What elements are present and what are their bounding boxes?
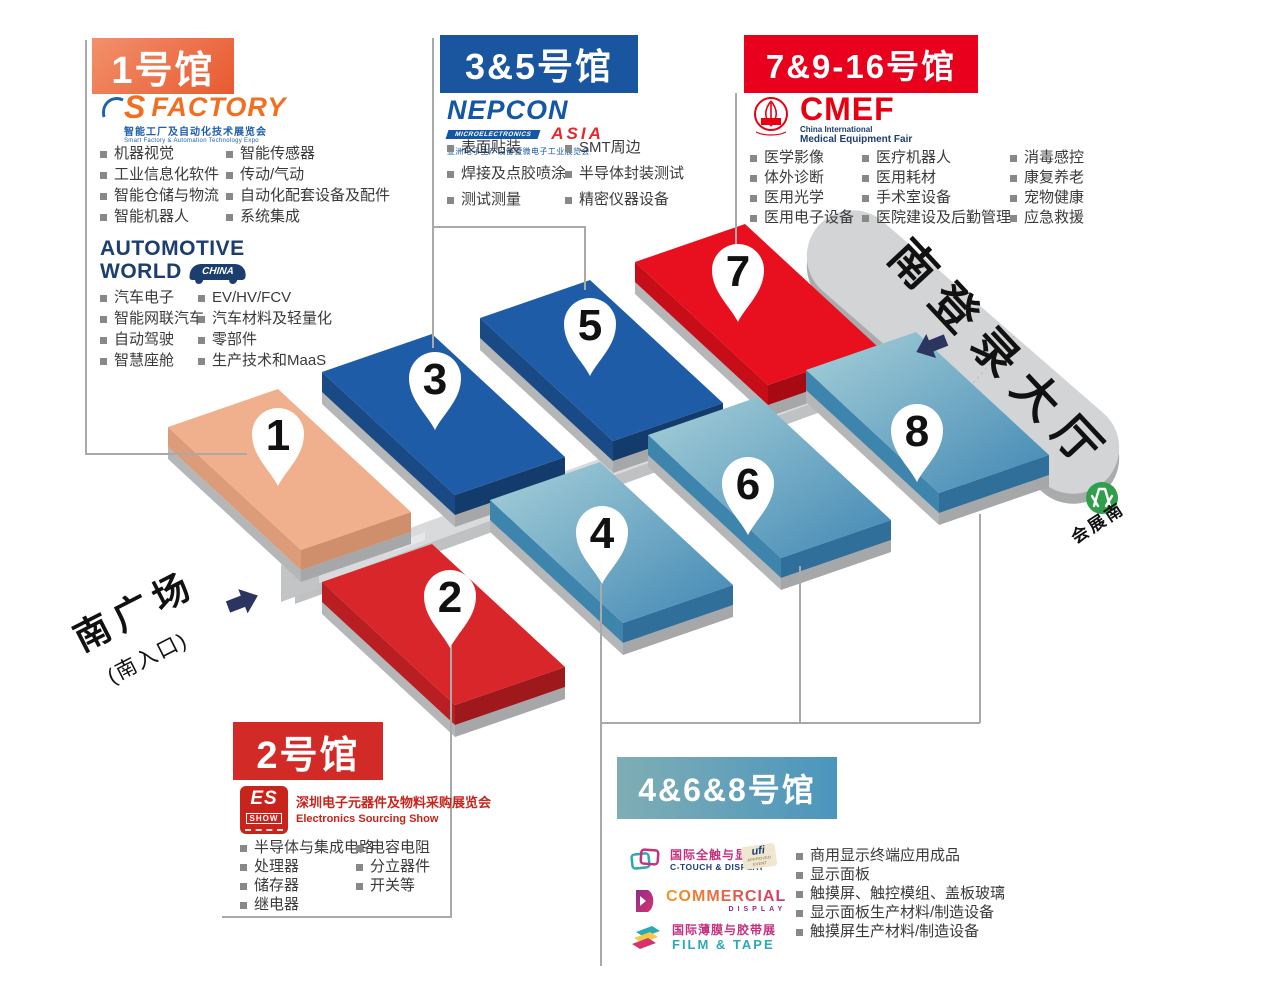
category-item: 智能仓储与物流 — [100, 188, 219, 204]
commercial-d-icon — [632, 888, 658, 914]
ctouch-frames-icon — [630, 846, 662, 874]
sfactory-swoosh-icon — [100, 93, 124, 121]
cmef-subtitle-2: Medical Equipment Fair — [800, 134, 912, 145]
automotive-logo-line1: AUTOMOTIVE — [100, 238, 246, 260]
svg-text:5: 5 — [578, 301, 602, 350]
svg-text:1: 1 — [266, 411, 290, 460]
svg-text:3: 3 — [423, 355, 447, 404]
category-item: 商用显示终端应用成品 — [796, 848, 1005, 864]
hall1-header-label: 1号馆 — [111, 39, 214, 94]
display-category-list: 商用显示终端应用成品 显示面板 触摸屏、触控模组、盖板玻璃 显示面板生产材料/制… — [796, 848, 1005, 943]
exhibition-floor-map: { "colors": { "hall1_accent": "#ED6A3E",… — [0, 0, 1269, 985]
sfactory-logo-text: FACTORY — [151, 93, 286, 121]
cmef-category-list-3: 消毒感控 康复养老 宠物健康 应急救援 — [1010, 150, 1084, 230]
es-show-badge-icon: ES SHOW — [240, 786, 288, 834]
sfactory-category-list-left: 机器视觉 工业信息化软件 智能仓储与物流 智能机器人 — [100, 146, 219, 230]
svg-text:8: 8 — [905, 407, 929, 456]
es-show-logo: ES SHOW 深圳电子元器件及物料采购展览会 Electronics Sour… — [240, 786, 491, 834]
svg-text:6: 6 — [736, 460, 760, 509]
category-item: 零部件 — [198, 332, 332, 348]
sfactory-logo-s: S — [124, 93, 145, 121]
category-item: 智能传感器 — [226, 146, 390, 162]
sfactory-subtitle-cn: 智能工厂及自动化技术展览会 — [124, 123, 286, 138]
hall468-header-label: 4&6&8号馆 — [638, 765, 816, 811]
category-item: 处理器 — [240, 859, 374, 875]
category-item: 消毒感控 — [1010, 150, 1084, 166]
category-item: 汽车材料及轻量化 — [198, 311, 332, 327]
category-item: 医院建设及后勤管理 — [862, 210, 1011, 226]
category-item: 应急救援 — [1010, 210, 1084, 226]
category-item: EV/HV/FCV — [198, 290, 332, 306]
filmtape-subtitle-cn: 国际薄膜与胶带展 — [672, 923, 776, 937]
category-item: 系统集成 — [226, 209, 390, 225]
category-item: 显示面板 — [796, 867, 1005, 883]
category-item: 医疗机器人 — [862, 150, 1011, 166]
category-item: 焊接及点胶喷涂 — [447, 166, 566, 182]
es-subtitle-en: Electronics Sourcing Show — [296, 813, 491, 825]
category-item: 精密仪器设备 — [565, 192, 684, 208]
category-item: 开关等 — [356, 878, 430, 894]
category-item: 触摸屏、触控模组、盖板玻璃 — [796, 886, 1005, 902]
es-category-list-right: 电容电阻 分立器件 开关等 — [356, 840, 430, 897]
es-category-list-left: 半导体与集成电路 处理器 储存器 继电器 — [240, 840, 374, 916]
hall1-header-badge: 1号馆 — [92, 38, 234, 94]
category-item: 继电器 — [240, 897, 374, 913]
automotive-logo-line2: WORLD — [100, 260, 182, 284]
nepcon-band-text: MICROELECTRONICS — [446, 130, 541, 139]
category-item: 传动/气动 — [226, 167, 390, 183]
nepcon-logo-text: NEPCON — [447, 97, 604, 123]
es-subtitle-cn: 深圳电子元器件及物料采购展览会 — [296, 795, 491, 811]
cmef-logo-text: CMEF — [800, 94, 912, 124]
category-item: 手术室设备 — [862, 190, 1011, 206]
category-item: 自动驾驶 — [100, 332, 204, 348]
film-layers-icon — [630, 922, 664, 952]
hall35-header-label: 3&5号馆 — [465, 38, 613, 90]
category-item: 医用光学 — [750, 190, 854, 206]
category-item: 半导体封装测试 — [565, 166, 684, 182]
category-item: 工业信息化软件 — [100, 167, 219, 183]
hall7916-header-label: 7&9-16号馆 — [766, 40, 956, 88]
sfactory-category-list-right: 智能传感器 传动/气动 自动化配套设备及配件 系统集成 — [226, 146, 390, 230]
category-item: 智能网联汽车 — [100, 311, 204, 327]
hall7916-header-badge: 7&9-16号馆 — [744, 35, 978, 93]
automotive-category-list-right: EV/HV/FCV 汽车材料及轻量化 零部件 生产技术和MaaS — [198, 290, 332, 374]
cmef-category-list-2: 医疗机器人 医用耗材 手术室设备 医院建设及后勤管理 — [862, 150, 1011, 230]
category-item: 半导体与集成电路 — [240, 840, 374, 856]
category-item: SMT周边 — [565, 140, 684, 156]
nepcon-category-list-left: 表面贴装 焊接及点胶喷涂 测试测量 — [447, 140, 566, 218]
nepcon-category-list-right: SMT周边 半导体封装测试 精密仪器设备 — [565, 140, 684, 218]
category-item: 分立器件 — [356, 859, 430, 875]
cmef-category-list-1: 医学影像 体外诊断 医用光学 医用电子设备 — [750, 150, 854, 230]
category-item: 医用耗材 — [862, 170, 1011, 186]
category-item: 医用电子设备 — [750, 210, 854, 226]
hall2-header-label: 2号馆 — [256, 724, 359, 779]
es-logo-show: SHOW — [246, 813, 283, 824]
film-tape-logo: 国际薄膜与胶带展 FILM & TAPE — [630, 922, 776, 952]
es-logo-abbr: ES — [240, 789, 288, 808]
china-car-badge: CHINA — [189, 264, 246, 280]
category-item: 电容电阻 — [356, 840, 430, 856]
commercial-display-logo: COMMERCIAL DISPLAY — [632, 888, 786, 914]
category-item: 宠物健康 — [1010, 190, 1084, 206]
hall35-header-badge: 3&5号馆 — [440, 35, 638, 93]
category-item: 汽车电子 — [100, 290, 204, 306]
sfactory-subtitle-en: Smart Factory & Automation Technology Ex… — [124, 138, 286, 144]
category-item: 测试测量 — [447, 192, 566, 208]
cmef-emblem-icon — [750, 94, 792, 138]
category-item: 康复养老 — [1010, 170, 1084, 186]
category-item: 医学影像 — [750, 150, 854, 166]
automotive-category-list-left: 汽车电子 智能网联汽车 自动驾驶 智慧座舱 — [100, 290, 204, 374]
automotive-world-logo: AUTOMOTIVE WORLD CHINA — [100, 238, 246, 284]
svg-text:7: 7 — [726, 247, 750, 296]
category-item: 储存器 — [240, 878, 374, 894]
category-item: 智慧座舱 — [100, 353, 204, 369]
category-item: 触摸屏生产材料/制造设备 — [796, 924, 1005, 940]
cmef-logo: CMEF China International Medical Equipme… — [750, 94, 912, 145]
category-item: 表面贴装 — [447, 140, 566, 156]
hall468-header-badge: 4&6&8号馆 — [617, 757, 837, 819]
category-item: 体外诊断 — [750, 170, 854, 186]
commercial-sub-text: DISPLAY — [666, 906, 786, 913]
category-item: 智能机器人 — [100, 209, 219, 225]
svg-text:4: 4 — [590, 509, 615, 558]
cmef-subtitle-1: China International — [800, 125, 912, 134]
category-item: 生产技术和MaaS — [198, 353, 332, 369]
commercial-logo-text: COMMERCIAL — [666, 889, 786, 905]
leader-hall5 — [433, 227, 585, 290]
hall2-header-badge: 2号馆 — [233, 722, 383, 780]
sfactory-logo: S FACTORY 智能工厂及自动化技术展览会 Smart Factory & … — [100, 93, 286, 144]
category-item: 显示面板生产材料/制造设备 — [796, 905, 1005, 921]
filmtape-subtitle-en: FILM & TAPE — [672, 937, 776, 952]
svg-text:2: 2 — [438, 573, 462, 622]
ufi-badge: ufi APPROVED EVENT — [741, 843, 778, 871]
category-item: 自动化配套设备及配件 — [226, 188, 390, 204]
plaza-entry-arrow-icon — [223, 583, 262, 619]
category-item: 机器视觉 — [100, 146, 219, 162]
